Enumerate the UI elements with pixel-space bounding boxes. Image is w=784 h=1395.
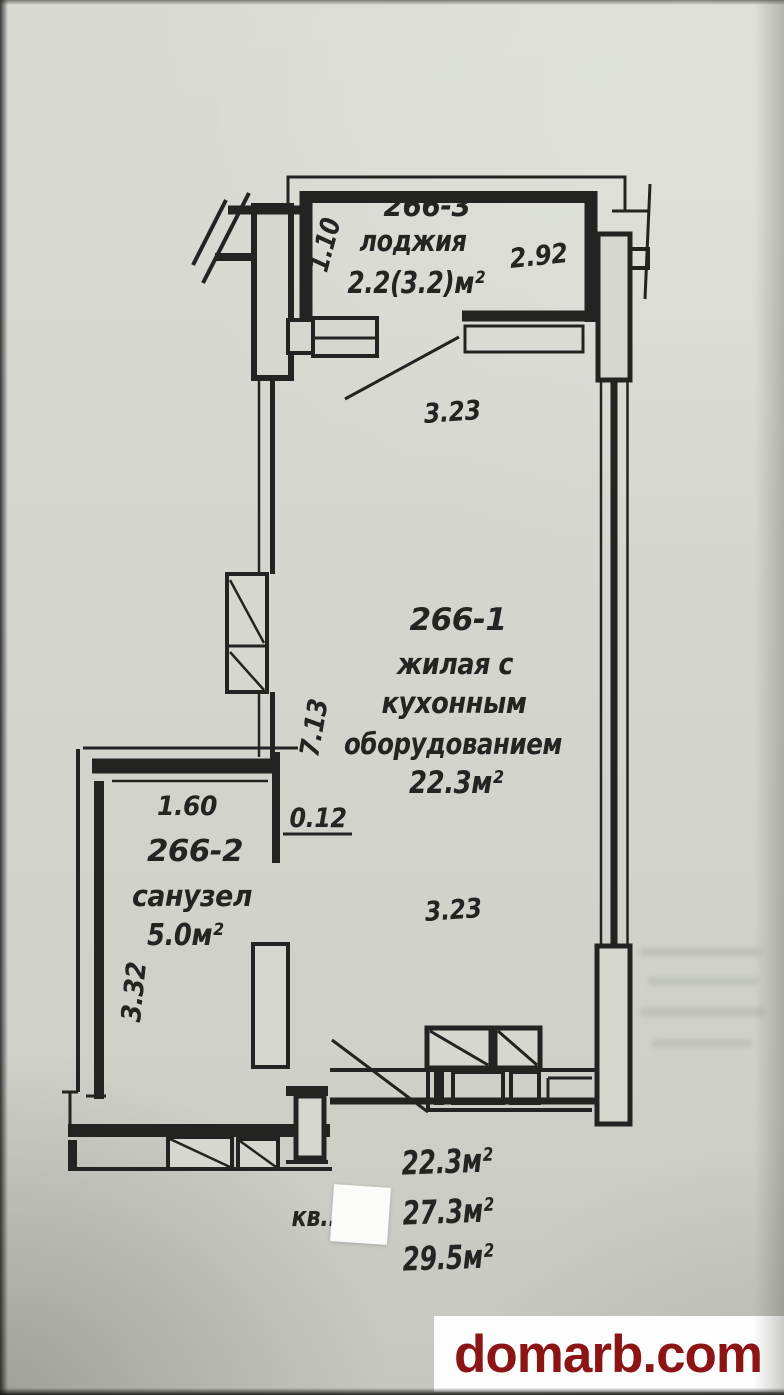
bathroom-door-leaf	[253, 944, 288, 1067]
walls	[62, 177, 650, 1169]
living-number-label: 266-1	[410, 602, 507, 638]
column-bottom-right	[597, 946, 630, 1124]
bathroom-area-label: 5.0м²	[147, 918, 223, 953]
bathroom-name-label: санузел	[132, 879, 252, 913]
summary-apartment-prefix: кв..	[292, 1200, 337, 1233]
break-line-1	[203, 193, 249, 283]
bottom-wall-end	[68, 1140, 77, 1169]
column-top-left	[254, 206, 291, 378]
summary-total-with-loggia: 29.5м²	[402, 1236, 495, 1278]
bleed-through-mark	[652, 1040, 752, 1047]
outer-wall-left-step	[62, 1092, 78, 1126]
living-name-line1: жилая с	[395, 647, 513, 681]
living-area-label: 22.3м²	[409, 765, 504, 801]
dim-room-width-top: 3.23	[423, 395, 482, 430]
column-top-right	[598, 234, 630, 380]
loggia-number-label: 266-3	[384, 189, 471, 223]
summary-total-area: 27.3м²	[402, 1190, 495, 1232]
dim-bathroom-width: 1.60	[157, 791, 217, 822]
dim-room-width-bottom: 3.23	[424, 893, 483, 928]
balcony-wall-cap	[288, 320, 313, 353]
bathroom-number-label: 266-2	[147, 834, 243, 869]
entrance-jamb-body	[296, 1096, 324, 1158]
loggia-name-label: лоджия	[360, 224, 467, 258]
window-sill-box	[465, 326, 583, 352]
dim-loggia-width: 2.92	[508, 238, 569, 275]
dim-wall-thickness: 0.12	[290, 803, 347, 834]
watermark-box: domarb.com	[434, 1316, 784, 1392]
floor-plan-drawing: 266-3 лоджия 2.2(3.2)м² 1.10 2.92 3.23 2…	[0, 0, 784, 1395]
dim-bathroom-depth: 3.32	[116, 961, 153, 1024]
dim-room-depth: 7.13	[294, 697, 335, 760]
bleed-through-mark	[640, 948, 760, 956]
bleed-through-mark	[648, 978, 758, 985]
living-name-line3: оборудованием	[344, 727, 562, 761]
living-name-line2: кухонным	[382, 686, 527, 720]
apartment-number-redaction-sticker	[330, 1184, 391, 1245]
loggia-area-label: 2.2(3.2)м²	[348, 266, 485, 301]
bleed-through-mark	[640, 1008, 765, 1016]
kitchen-unit-bar	[434, 1072, 444, 1105]
vent-shaft-left	[227, 574, 267, 692]
summary-living-area: 22.3м²	[401, 1140, 494, 1182]
floor-plan-photo: 266-3 лоджия 2.2(3.2)м² 1.10 2.92 3.23 2…	[0, 0, 784, 1395]
watermark-text: domarb.com	[454, 1328, 762, 1381]
loggia-cut-line	[645, 184, 650, 299]
